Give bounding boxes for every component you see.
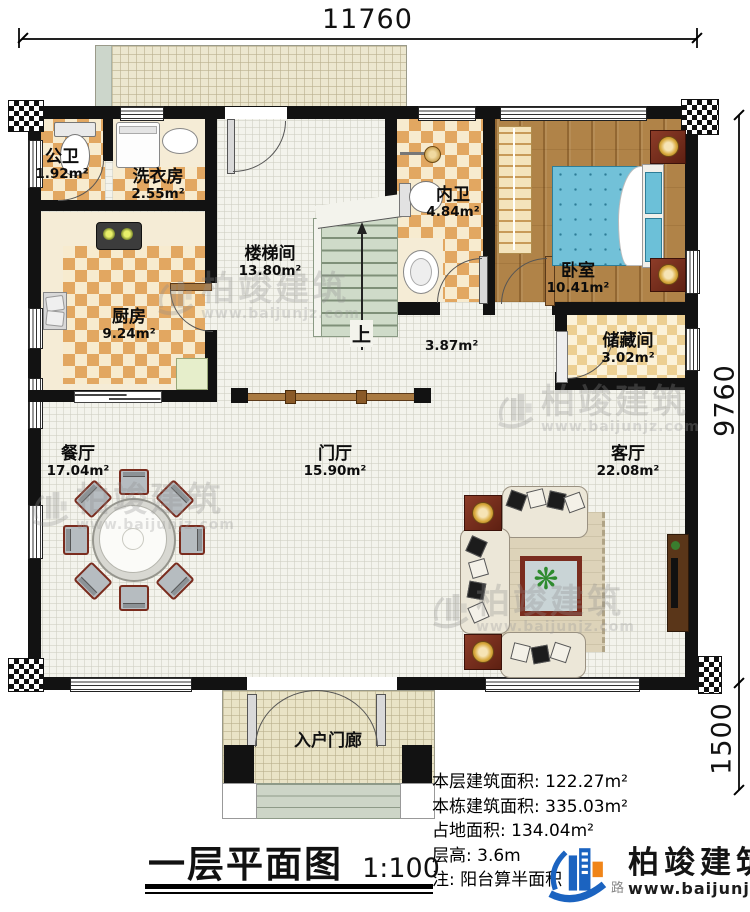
shower-arm bbox=[400, 152, 426, 155]
window bbox=[685, 250, 700, 294]
stat-label: 占地面积: bbox=[432, 821, 511, 841]
entry-door-opening bbox=[247, 677, 397, 690]
room-name: 洗衣房 bbox=[133, 168, 184, 187]
railing-nub bbox=[356, 390, 367, 404]
room-label-laundry: 洗衣房 2.55m² bbox=[113, 168, 203, 202]
company-logo: 路 柏竣建筑 www.baijunjz.com bbox=[545, 842, 750, 904]
shower-head bbox=[424, 146, 441, 163]
room-label-ensuite: 内卫 4.84m² bbox=[410, 186, 496, 220]
stat-value: 335.03m² bbox=[545, 797, 628, 817]
room-area: 15.90m² bbox=[304, 464, 367, 479]
title-underline-thin bbox=[145, 892, 433, 894]
corridor-area-label: 3.87m² bbox=[425, 338, 478, 354]
stat-value: 122.27m² bbox=[545, 772, 628, 792]
window bbox=[70, 677, 192, 692]
wall-bath-laundry bbox=[103, 119, 113, 161]
room-name: 内卫 bbox=[436, 186, 470, 205]
porch-pillar bbox=[402, 745, 432, 783]
room-label-stairhall: 楼梯间 13.80m² bbox=[218, 245, 322, 279]
room-area: 13.80m² bbox=[239, 264, 302, 279]
room-name: 卧室 bbox=[561, 262, 595, 281]
window bbox=[28, 378, 43, 429]
dining-chairs bbox=[119, 527, 145, 549]
dim-line-right bbox=[738, 115, 740, 790]
sink-basin bbox=[45, 310, 64, 327]
dim-right-main: 9760 bbox=[710, 356, 741, 446]
window bbox=[500, 106, 647, 121]
wardrobe bbox=[498, 126, 532, 254]
wall-kitchen-right-upper bbox=[205, 211, 217, 283]
room-area: 10.41m² bbox=[547, 281, 610, 296]
porch-steps bbox=[256, 783, 402, 819]
railing-post bbox=[231, 388, 248, 403]
laundry-sink bbox=[162, 128, 198, 154]
room-name: 楼梯间 bbox=[245, 245, 296, 264]
washer-panel bbox=[119, 126, 157, 134]
lamp bbox=[658, 264, 679, 285]
room-label-bathroom: 公卫 1.92m² bbox=[26, 148, 98, 182]
door-opening-top bbox=[225, 107, 287, 119]
stat-value: 134.04m² bbox=[511, 821, 594, 841]
floor-plan-canvas: 11760 9760 1500 bbox=[0, 0, 750, 912]
corner-pillar bbox=[8, 658, 44, 692]
room-area: 4.84m² bbox=[426, 205, 479, 220]
wall-bedroom-bottom bbox=[552, 302, 685, 315]
window bbox=[685, 328, 700, 371]
logo-name: 柏竣建筑 bbox=[628, 848, 750, 879]
room-name: 门厅 bbox=[318, 445, 352, 464]
stair-up-arrow bbox=[357, 222, 367, 234]
pillow bbox=[645, 218, 662, 262]
room-label-kitchen: 厨房 9.24m² bbox=[84, 308, 174, 342]
lamp bbox=[472, 502, 494, 524]
stat-line: 本栋建筑面积: 335.03m² bbox=[432, 795, 732, 820]
kitchen-sliding-door bbox=[74, 391, 162, 403]
title-text: 一层平面图 bbox=[148, 843, 343, 886]
stat-label: 本层建筑面积: bbox=[432, 772, 545, 792]
porch-step-side bbox=[222, 783, 257, 819]
window bbox=[28, 505, 43, 559]
wall-storage-bottom bbox=[555, 378, 698, 390]
wardrobe-rail bbox=[513, 128, 515, 250]
title-scale: 1:100 bbox=[362, 853, 440, 884]
room-label-bedroom: 卧室 10.41m² bbox=[530, 262, 626, 296]
room-area: 22.08m² bbox=[597, 464, 660, 479]
room-label-porch: 入户门廊 bbox=[268, 726, 388, 751]
stat-line: 占地面积: 134.04m² bbox=[432, 819, 732, 844]
room-name: 厨房 bbox=[112, 308, 146, 327]
wall-storage-left-upper bbox=[555, 315, 567, 331]
title-underline-thick bbox=[145, 884, 433, 889]
room-name: 客厅 bbox=[611, 445, 645, 464]
railing-post bbox=[414, 388, 431, 403]
tv bbox=[671, 558, 678, 608]
room-label-living: 客厅 22.08m² bbox=[578, 445, 678, 479]
stat-label: 本栋建筑面积: bbox=[432, 797, 545, 817]
stairs-up-label: 上 bbox=[350, 320, 373, 347]
dim-top-value: 11760 bbox=[322, 4, 413, 35]
lamp bbox=[658, 136, 679, 157]
railing-nub bbox=[285, 390, 296, 404]
dim-line-top bbox=[22, 38, 698, 40]
room-area: 2.55m² bbox=[131, 187, 184, 202]
wall-laundry-right bbox=[205, 119, 217, 211]
lamp bbox=[472, 641, 494, 663]
stat-line: 本层建筑面积: 122.27m² bbox=[432, 770, 732, 795]
window bbox=[120, 106, 164, 121]
room-label-storage: 储藏间 3.02m² bbox=[578, 332, 678, 366]
stove-burner bbox=[121, 228, 133, 240]
company-logo-icon bbox=[545, 842, 607, 904]
chair bbox=[179, 525, 205, 555]
porch-pillar bbox=[224, 745, 254, 783]
dim-right-porch: 1500 bbox=[707, 699, 738, 779]
window bbox=[418, 106, 476, 121]
logo-text-block: 柏竣建筑 www.baijunjz.com bbox=[628, 848, 750, 898]
room-area: 1.92m² bbox=[35, 167, 88, 182]
fridge bbox=[176, 358, 208, 390]
window bbox=[28, 308, 43, 349]
corner-pillar bbox=[8, 100, 44, 132]
room-name: 储藏间 bbox=[603, 332, 654, 351]
sink-basin bbox=[410, 258, 432, 286]
chair bbox=[119, 585, 149, 611]
stat-value: 3.6m bbox=[477, 846, 521, 866]
stove-burner bbox=[103, 228, 115, 240]
corner-pillar bbox=[681, 99, 719, 135]
porch-step-side bbox=[400, 783, 435, 819]
logo-stray-char: 路 bbox=[611, 877, 624, 896]
plant-small bbox=[671, 541, 680, 550]
chair bbox=[63, 525, 89, 555]
railing bbox=[237, 393, 429, 401]
window bbox=[485, 677, 640, 692]
room-label-foyer: 门厅 15.90m² bbox=[288, 445, 382, 479]
logo-url: www.baijunjz.com bbox=[628, 879, 750, 898]
sofa-pillow bbox=[531, 645, 551, 665]
room-name: 公卫 bbox=[45, 148, 79, 167]
room-area: 9.24m² bbox=[102, 327, 155, 342]
sofa-pillow bbox=[467, 581, 487, 601]
room-name: 餐厅 bbox=[61, 445, 95, 464]
room-area: 3.02m² bbox=[601, 351, 654, 366]
corner-pillar bbox=[698, 656, 722, 694]
sofa-pillow bbox=[546, 490, 566, 510]
room-label-dining: 餐厅 17.04m² bbox=[32, 445, 124, 479]
plant: ❋ bbox=[530, 564, 562, 596]
room-area: 17.04m² bbox=[47, 464, 110, 479]
pillow bbox=[645, 172, 662, 214]
drawing-title: 一层平面图 1:100 bbox=[148, 834, 440, 888]
